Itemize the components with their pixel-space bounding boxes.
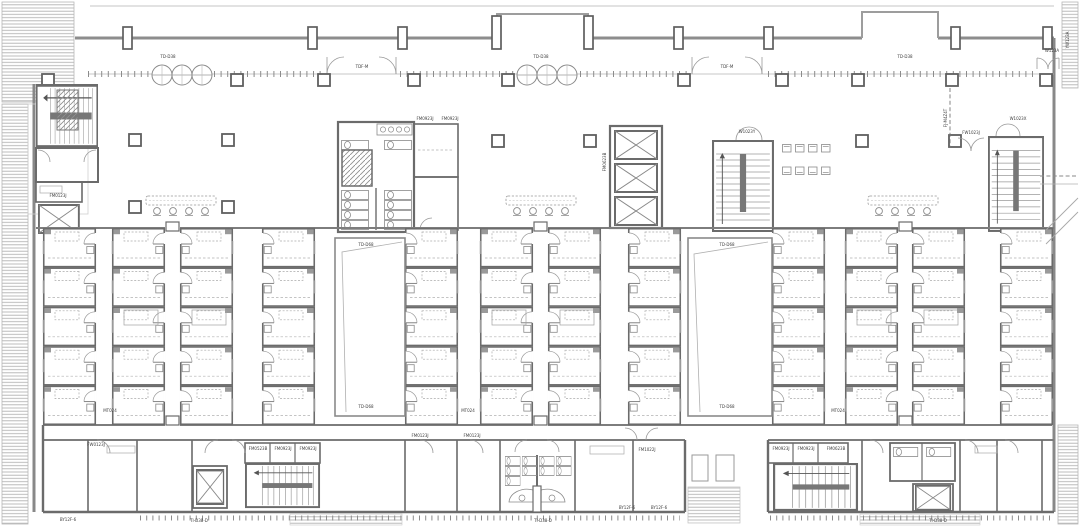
room-unit (629, 268, 681, 306)
label-duct: MT024 (103, 408, 117, 413)
label-joint: FJ-M4Z4T (943, 108, 948, 127)
room-unit (406, 386, 458, 424)
room-unit (406, 308, 458, 346)
room-unit (773, 347, 825, 385)
room-unit (913, 268, 965, 306)
room-unit (113, 347, 165, 385)
void-a (335, 238, 405, 416)
room-unit (263, 347, 315, 385)
label-duct: MT024 (831, 408, 845, 413)
label-void: TD-D68 (357, 242, 374, 247)
label-closet: FM0923J (274, 446, 291, 451)
room-unit (263, 386, 315, 424)
room-unit (44, 386, 96, 424)
room-unit (1001, 347, 1053, 385)
label-stair: W1023X (1010, 116, 1027, 121)
void-b (688, 238, 772, 416)
room-unit (773, 386, 825, 424)
room-unit (263, 268, 315, 306)
room-unit (549, 268, 601, 306)
floor-plan-canvas: TD-D38 TD-D38 TD-D38 TDF-M TDF-M TD-D68 … (0, 0, 1080, 526)
label-duct: MT024 (461, 408, 475, 413)
label-void: TD-D68 (718, 242, 735, 247)
label-south: TI-D38-D (533, 518, 552, 523)
room-unit (549, 386, 601, 424)
room-unit (1001, 308, 1053, 346)
label-south: TI-D38-D (189, 518, 208, 523)
room-unit (44, 229, 96, 267)
label-stair: W1023Y (739, 129, 756, 134)
room-unit (181, 229, 233, 267)
label-door: FM0123J (411, 433, 428, 438)
label-room: FM0123J (49, 193, 66, 198)
label-closet: FM0923J (772, 446, 789, 451)
room-unit (1001, 386, 1053, 424)
label-corridor: TD-D38 (532, 54, 549, 59)
room-unit (481, 229, 533, 267)
round-columns-mid (517, 65, 577, 85)
label-corridor: TD-D38 (896, 54, 913, 59)
room-unit (846, 308, 898, 346)
room-unit (44, 268, 96, 306)
room-unit (629, 308, 681, 346)
label-closet: FM0923J (797, 446, 814, 451)
room-unit (113, 308, 165, 346)
label-edge: YW123A (1065, 31, 1070, 49)
room-unit (406, 229, 458, 267)
room-unit (846, 229, 898, 267)
room-unit (1001, 229, 1053, 267)
label-facade: BY12F-6 (619, 505, 636, 510)
room-unit (481, 347, 533, 385)
room-unit (481, 268, 533, 306)
room-unit (263, 308, 315, 346)
room-unit (773, 229, 825, 267)
label-elevator: FM0623B (602, 152, 607, 171)
room-unit (181, 347, 233, 385)
label-void: TD-D68 (357, 404, 374, 409)
room-unit (44, 308, 96, 346)
room-unit (913, 308, 965, 346)
room-unit (549, 308, 601, 346)
room-unit (44, 347, 96, 385)
elevator-bank-mid (610, 126, 662, 228)
label-door: TDF-M (720, 64, 734, 69)
room-unit (181, 308, 233, 346)
label-facade: BY12F-6 (60, 517, 77, 522)
room-unit (481, 308, 533, 346)
room-unit (846, 347, 898, 385)
label-closet: FM0623B (827, 446, 846, 451)
label-void: TD-D68 (718, 404, 735, 409)
label-door: W123A (1045, 48, 1060, 53)
label-door: FW0123J (87, 442, 105, 447)
stair-mid (713, 127, 773, 231)
label-south: TI-D38-D (928, 518, 947, 523)
room-unit (629, 229, 681, 267)
stair-bl (246, 464, 319, 507)
elevator-br (916, 486, 950, 510)
terrace-hatch (688, 487, 740, 523)
label-wc: FM0923J (441, 116, 458, 121)
floor-plan-document: TD-D38 TD-D38 TD-D38 TDF-M TDF-M TD-D68 … (0, 0, 1080, 526)
round-columns-left (152, 65, 212, 85)
shaft-hatched (342, 150, 372, 186)
room-unit (406, 268, 458, 306)
room-unit (181, 386, 233, 424)
room-unit (1001, 268, 1053, 306)
room-unit (846, 386, 898, 424)
label-closet: FM0523B (249, 446, 268, 451)
stair-br (774, 464, 857, 510)
room-unit (181, 268, 233, 306)
room-unit (406, 347, 458, 385)
room-unit (549, 347, 601, 385)
label-room: FM1022J (638, 447, 655, 452)
label-facade: BY12F-6 (651, 505, 668, 510)
room-unit (773, 268, 825, 306)
room-unit (481, 386, 533, 424)
room-unit (113, 268, 165, 306)
room-unit (913, 229, 965, 267)
elevator-bl (197, 470, 224, 504)
label-closet: FM0923J (299, 446, 316, 451)
label-door: TDF-M (355, 64, 369, 69)
room-unit (846, 268, 898, 306)
room-unit (113, 229, 165, 267)
room-unit (263, 229, 315, 267)
label-door: FM0123J (463, 433, 480, 438)
room-unit (913, 347, 965, 385)
label-wc: FM0923J (416, 116, 433, 121)
room-unit (113, 386, 165, 424)
label-corridor: TD-D38 (159, 54, 176, 59)
room-unit (913, 386, 965, 424)
room-unit (773, 308, 825, 346)
room-unit (629, 347, 681, 385)
room-unit (629, 386, 681, 424)
label-door: FW1023J (962, 130, 980, 135)
room-unit (549, 229, 601, 267)
